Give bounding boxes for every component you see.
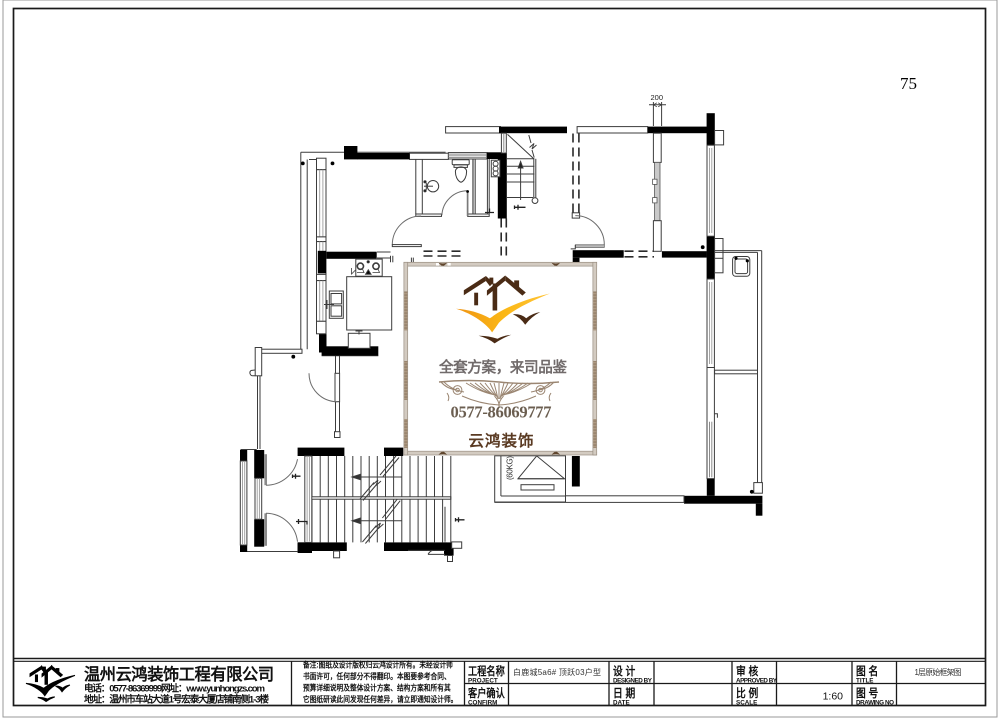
svg-text:CONFIRM: CONFIRM xyxy=(468,700,497,707)
svg-text:书面许可，任何部分不得翻印。本图要参考合同、: 书面许可，任何部分不得翻印。本图要参考合同、 xyxy=(303,671,451,681)
svg-text:全套方案，来司品鉴: 全套方案，来司品鉴 xyxy=(438,358,567,376)
svg-text:备注:图纸及设计版权归云鸿设计所有。未经设计师: 备注:图纸及设计版权归云鸿设计所有。未经设计师 xyxy=(302,660,453,670)
svg-text:云鸿装饰: 云鸿装饰 xyxy=(469,431,534,450)
svg-text:工程名称: 工程名称 xyxy=(468,664,505,678)
svg-text:APPROVED BY: APPROVED BY xyxy=(736,678,778,685)
svg-text:SCALE: SCALE xyxy=(736,700,757,707)
svg-text:电话：0577-86369999网址：www.yunhong: 电话：0577-86369999网址：www.yunhongzs.com xyxy=(84,683,265,695)
svg-text:1:60: 1:60 xyxy=(823,691,844,703)
svg-text:75: 75 xyxy=(900,74,917,93)
svg-text:日 期: 日 期 xyxy=(613,686,636,700)
svg-text:审 核: 审 核 xyxy=(736,664,759,678)
svg-text:它图纸研读此间发现任何差异，请立即通知设计师。: 它图纸研读此间发现任何差异，请立即通知设计师。 xyxy=(303,694,457,704)
svg-text:客户确认: 客户确认 xyxy=(467,686,505,700)
svg-text:设 计: 设 计 xyxy=(613,664,636,678)
svg-text:200: 200 xyxy=(651,93,664,102)
svg-text:温州云鸿装饰工程有限公司: 温州云鸿装饰工程有限公司 xyxy=(83,665,274,684)
svg-text:DATE: DATE xyxy=(613,700,630,707)
svg-text:PROJECT: PROJECT xyxy=(468,678,498,685)
svg-text:图 名: 图 名 xyxy=(856,664,878,678)
svg-text:比 例: 比 例 xyxy=(736,686,759,700)
svg-text:TITLE: TITLE xyxy=(856,678,874,685)
svg-text:图 号: 图 号 xyxy=(856,687,879,700)
svg-text:预算详细说明及整体设计方案、结构方案和所有其: 预算详细说明及整体设计方案、结构方案和所有其 xyxy=(303,683,451,693)
svg-text:DESIGNED BY: DESIGNED BY xyxy=(613,678,653,685)
svg-text:0577-86069777: 0577-86069777 xyxy=(451,403,552,422)
svg-text:1层原始框架图: 1层原始框架图 xyxy=(915,667,962,677)
svg-text:白鹿城5a6# 顶跃03户型: 白鹿城5a6# 顶跃03户型 xyxy=(513,667,601,677)
svg-text:(60KG): (60KG) xyxy=(506,456,515,480)
svg-text:地址：温州市车站大道1号宏泰大厦店铺南侧1-3楼: 地址：温州市车站大道1号宏泰大厦店铺南侧1-3楼 xyxy=(84,694,269,706)
svg-text:DRAWING NO: DRAWING NO xyxy=(856,700,894,707)
